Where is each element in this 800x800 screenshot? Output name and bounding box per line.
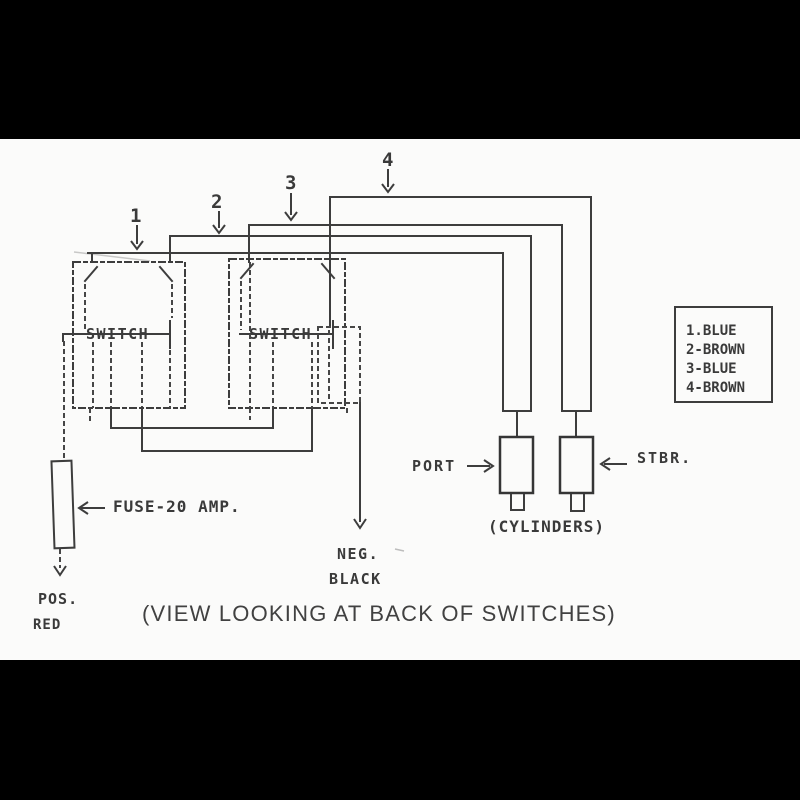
wire-number-4: 4	[382, 149, 393, 171]
paper-background	[0, 139, 800, 660]
wire-number-2: 2	[211, 191, 222, 213]
legend-item-2: 2-BROWN	[686, 342, 745, 358]
wire-callout-4: 4	[382, 149, 394, 192]
switch-1-label: SWITCH	[86, 325, 149, 343]
legend-item-3: 3-BLUE	[686, 361, 737, 377]
wire-number-3: 3	[285, 172, 296, 194]
scanned-wiring-diagram-page: 1 2 3 4 SWITCH SWITCH	[0, 0, 800, 800]
cylinders-label: (CYLINDERS)	[488, 517, 605, 536]
neg-label: NEG.	[337, 545, 379, 563]
legend-item-4: 4-BROWN	[686, 380, 745, 396]
fuse-label: FUSE-20 AMP.	[113, 497, 241, 516]
switch-2-label: SWITCH	[249, 325, 312, 343]
diagram-caption: (VIEW LOOKING AT BACK OF SWITCHES)	[142, 601, 616, 626]
black-label: BLACK	[329, 570, 382, 588]
bottom-letterbox-bar	[0, 660, 800, 800]
port-label: PORT	[412, 457, 456, 475]
legend-item-1: 1.BLUE	[686, 323, 737, 339]
stbr-label: STBR.	[637, 449, 692, 467]
pos-label: POS.	[38, 590, 78, 608]
top-letterbox-bar	[0, 0, 800, 139]
red-label: RED	[33, 617, 61, 633]
wire-number-1: 1	[130, 205, 141, 227]
